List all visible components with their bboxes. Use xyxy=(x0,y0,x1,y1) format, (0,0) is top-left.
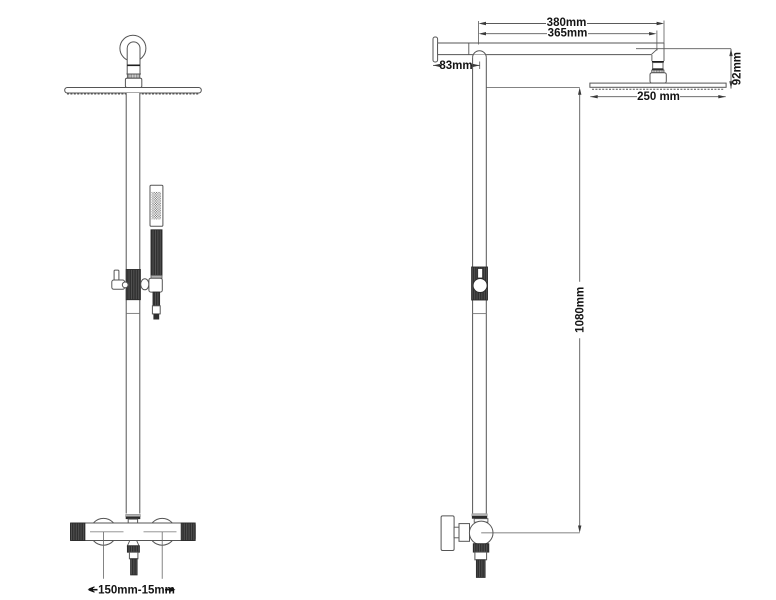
svg-text:92mm: 92mm xyxy=(732,52,744,85)
svg-text:< 150mm-15mm: < 150mm-15mm xyxy=(88,585,175,597)
svg-text:1080mm: 1080mm xyxy=(575,287,587,333)
svg-text:250 mm: 250 mm xyxy=(637,91,680,103)
svg-text:83mm: 83mm xyxy=(439,60,472,72)
svg-text:365mm: 365mm xyxy=(548,28,588,40)
